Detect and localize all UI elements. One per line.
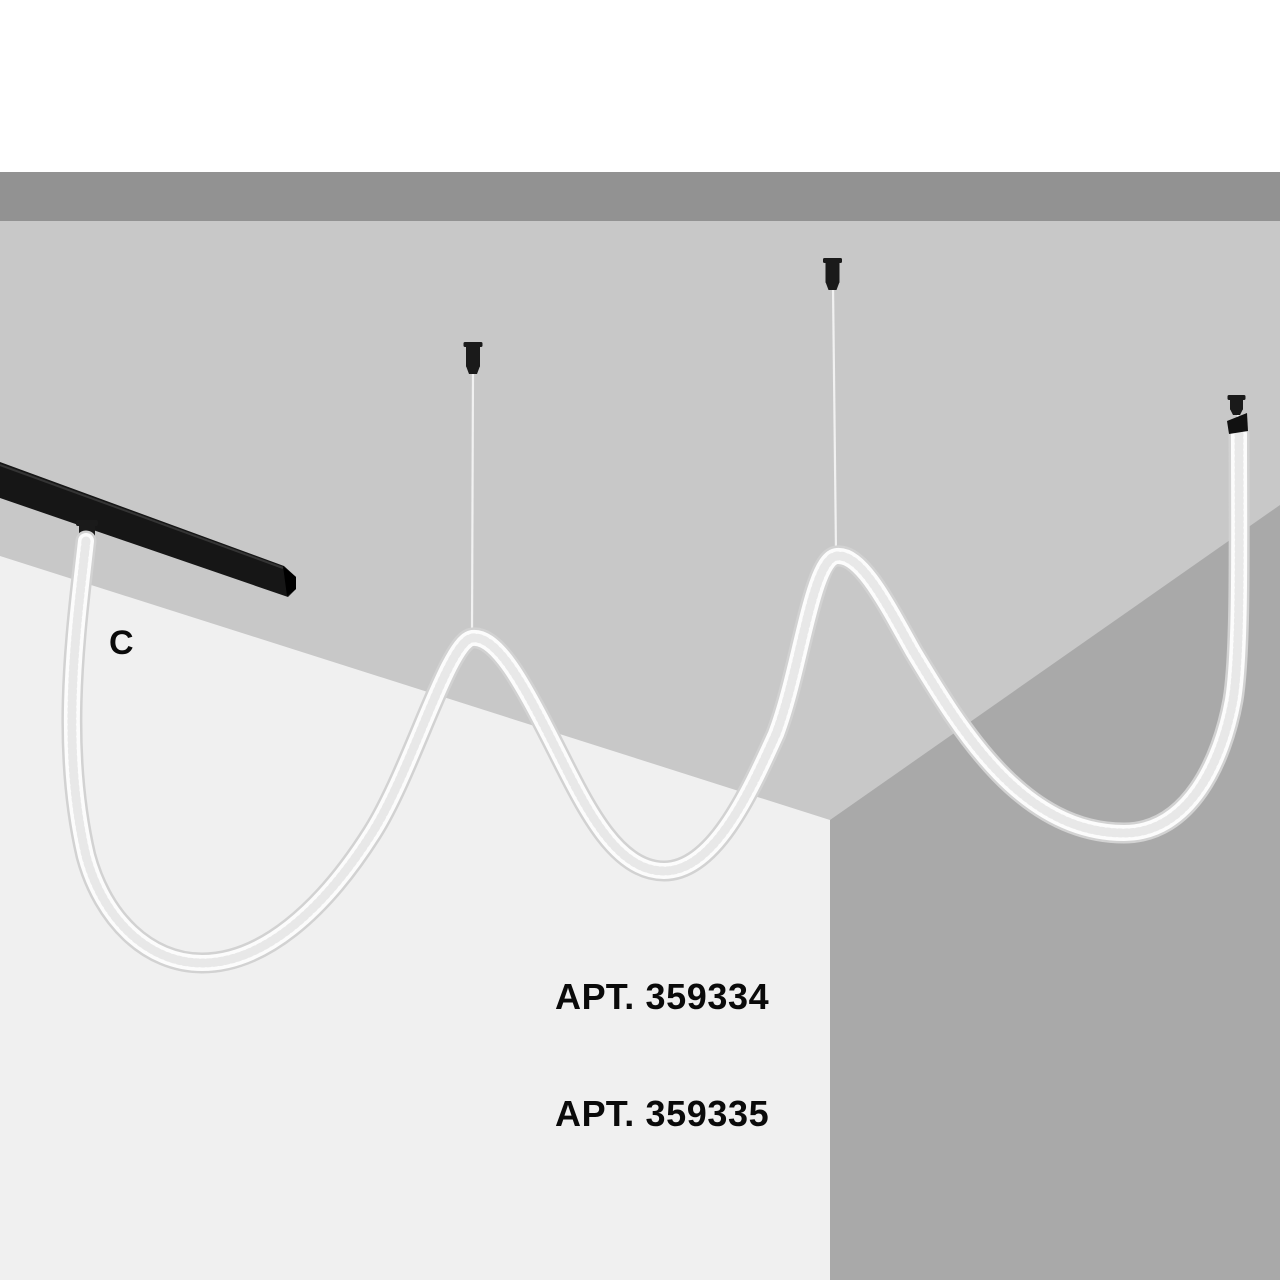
cord-marker-label-c: C <box>109 624 134 663</box>
product-installation-image: C АРТ. 359334 АРТ. 359335 <box>0 0 1280 1280</box>
canopy-left-body <box>466 346 480 367</box>
suspension-wire-left <box>472 368 473 634</box>
ceiling-fascia-band <box>0 172 1280 222</box>
article-numbers: АРТ. 359334 АРТ. 359335 <box>555 899 769 1211</box>
article-number-line2: АРТ. 359335 <box>555 1094 769 1133</box>
article-number-line1: АРТ. 359334 <box>555 977 769 1016</box>
canopy-middle-body <box>826 262 840 283</box>
canopy-right-body <box>1230 399 1243 410</box>
